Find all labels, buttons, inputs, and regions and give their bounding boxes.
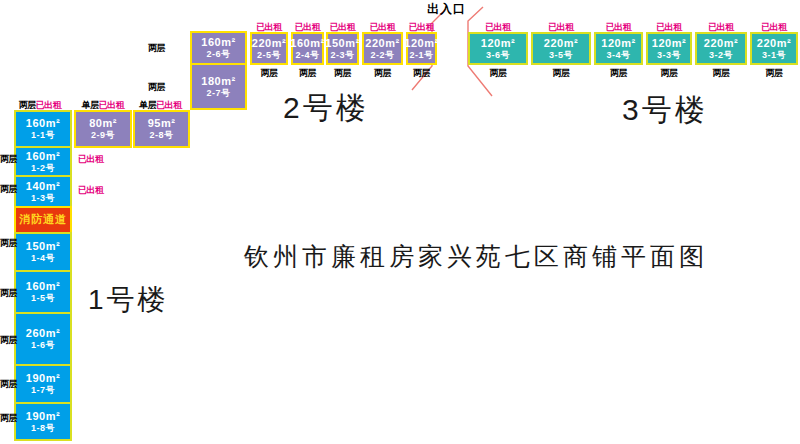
unit-number: 2-6号 [206, 49, 230, 60]
unit-1-6: 260m² 1-6号 [14, 312, 72, 366]
unit-1-3: 140m² 1-3号 [14, 175, 72, 208]
unit-area: 220m² [252, 37, 286, 50]
rented-tag: 已出租 [468, 21, 528, 34]
two-storey-tag: 两层 [406, 67, 437, 80]
two-storey-tag: 两层 [0, 183, 17, 196]
floor-plan: 出入口 钦州市廉租房家兴苑七区商铺平面图 1号楼 2号楼 3号楼 两层已出租 单… [0, 0, 800, 444]
unit-area: 220m² [544, 37, 578, 50]
two-storey-tag: 两层 [362, 67, 403, 80]
two-storey-tag: 两层 [594, 67, 643, 80]
unit-area: 120m² [481, 37, 515, 50]
unit-area: 160m² [26, 280, 60, 293]
unit-number: 2-5号 [257, 50, 281, 61]
unit-number: 2-2号 [370, 50, 394, 61]
rented-tag: 已出租 [594, 21, 643, 34]
unit-2-7: 180m² 2-7号 [190, 63, 247, 110]
rented-tag: 已出租 [406, 21, 437, 34]
unit-number: 2-1号 [409, 50, 433, 61]
rented-tag: 已出租 [531, 21, 591, 34]
unit-number: 1-2号 [31, 163, 55, 174]
unit-area: 220m² [757, 37, 791, 50]
unit-area: 140m² [26, 180, 60, 193]
unit-1-8: 190m² 1-8号 [14, 402, 72, 441]
two-storey-tag: 两层 [468, 67, 528, 80]
rented-tag: 已出租 [291, 21, 324, 34]
unit-number: 2-3号 [330, 50, 354, 61]
unit-1-4: 150m² 1-4号 [14, 232, 72, 272]
unit-number: 3-6号 [486, 50, 510, 61]
unit-area: 120m² [652, 37, 686, 50]
unit-number: 1-8号 [31, 423, 55, 434]
two-storey-tag: 两层 [750, 67, 798, 80]
unit-area: 260m² [26, 327, 60, 340]
unit-1-1: 160m² 1-1号 [14, 110, 72, 148]
unit-number: 3-5号 [549, 50, 573, 61]
two-storey-tag: 两层 [0, 237, 17, 250]
unit-number: 2-7号 [206, 88, 230, 99]
unit-number: 1-1号 [31, 130, 55, 141]
unit-area: 220m² [704, 37, 738, 50]
unit-3-4: 120m² 3-4号 [594, 32, 643, 65]
single-storey-tag: 单层 [82, 100, 99, 110]
two-storey-tag: 两层 [0, 378, 17, 391]
unit-1-5: 160m² 1-5号 [14, 270, 72, 314]
unit-number: 2-4号 [295, 50, 319, 61]
fire-lane-label: 消防通道 [19, 213, 67, 226]
unit-area: 120m² [601, 37, 635, 50]
unit-number: 3-1号 [762, 50, 786, 61]
rented-tag: 已出租 [36, 100, 62, 110]
two-storey-tag: 两层 [0, 287, 17, 300]
rented-tag: 已出租 [646, 21, 692, 34]
unit-number: 2-8号 [149, 130, 173, 141]
unit-area: 150m² [325, 37, 359, 50]
unit-number: 1-3号 [31, 193, 55, 204]
two-storey-tag: 两层 [0, 153, 17, 166]
two-storey-tag: 两层 [0, 334, 17, 347]
unit-2-8: 95m² 2-8号 [133, 110, 190, 148]
single-storey-tag: 单层 [139, 100, 156, 110]
unit-2-5: 220m² 2-5号 [250, 32, 288, 65]
rented-tag: 已出租 [750, 21, 798, 34]
unit-area: 160m² [201, 36, 235, 49]
unit-area: 95m² [148, 117, 176, 130]
unit-area: 160m² [290, 37, 324, 50]
two-storey-tag: 两层 [531, 67, 591, 80]
rented-tag: 已出租 [250, 21, 288, 34]
entrance-label: 出入口 [427, 1, 466, 18]
plan-title: 钦州市廉租房家兴苑七区商铺平面图 [244, 240, 708, 273]
unit-area: 150m² [26, 240, 60, 253]
unit-2-1: 120m² 2-1号 [406, 32, 437, 65]
building1-label: 1号楼 [88, 281, 169, 319]
unit-area: 160m² [26, 117, 60, 130]
two-storey-tag: 两层 [148, 42, 165, 55]
unit-area: 80m² [89, 117, 117, 130]
unit-2-4: 160m² 2-4号 [291, 32, 324, 65]
unit-area: 180m² [201, 75, 235, 88]
unit-3-5: 220m² 3-5号 [531, 32, 591, 65]
fire-lane-cell: 消防通道 [14, 206, 72, 234]
two-storey-tag: 两层 [646, 67, 692, 80]
unit-number: 3-4号 [606, 50, 630, 61]
unit-area: 160m² [26, 150, 60, 163]
rented-tag: 已出租 [695, 21, 747, 34]
unit-number: 2-9号 [91, 130, 115, 141]
unit-number: 1-5号 [31, 293, 55, 304]
two-storey-tag: 两层 [250, 67, 288, 80]
unit-number: 3-3号 [657, 50, 681, 61]
two-storey-tag: 两层 [148, 81, 165, 94]
two-storey-tag: 两层 [0, 412, 17, 425]
rented-tag: 已出租 [156, 100, 182, 110]
unit-area: 220m² [365, 37, 399, 50]
unit-1-2: 160m² 1-2号 [14, 146, 72, 177]
rented-tag: 已出租 [99, 100, 125, 110]
unit-3-3: 120m² 3-3号 [646, 32, 692, 65]
unit-2-6: 160m² 2-6号 [190, 31, 247, 65]
unit-3-6: 120m² 3-6号 [468, 32, 528, 65]
unit-1-7: 190m² 1-7号 [14, 364, 72, 404]
unit-2-2: 220m² 2-2号 [362, 32, 403, 65]
unit-number: 1-4号 [31, 253, 55, 264]
unit-area: 190m² [26, 372, 60, 385]
unit-number: 1-6号 [31, 340, 55, 351]
rented-tag: 已出租 [78, 153, 104, 166]
two-storey-tag: 两层 [19, 100, 36, 110]
unit-2-9: 80m² 2-9号 [74, 110, 132, 148]
rented-tag: 已出租 [362, 21, 403, 34]
rented-tag: 已出租 [78, 184, 104, 197]
two-storey-tag: 两层 [326, 67, 359, 80]
unit-3-2: 220m² 3-2号 [695, 32, 747, 65]
unit-area: 120m² [404, 37, 438, 50]
rented-tag: 已出租 [326, 21, 359, 34]
two-storey-tag: 两层 [291, 67, 324, 80]
unit-2-3: 150m² 2-3号 [326, 32, 359, 65]
unit-3-1: 220m² 3-1号 [750, 32, 798, 65]
two-storey-tag: 两层 [695, 67, 747, 80]
unit-area: 190m² [26, 410, 60, 423]
unit-number: 1-7号 [31, 385, 55, 396]
building2-label: 2号楼 [283, 88, 369, 129]
building3-label: 3号楼 [622, 90, 708, 131]
unit-number: 3-2号 [709, 50, 733, 61]
